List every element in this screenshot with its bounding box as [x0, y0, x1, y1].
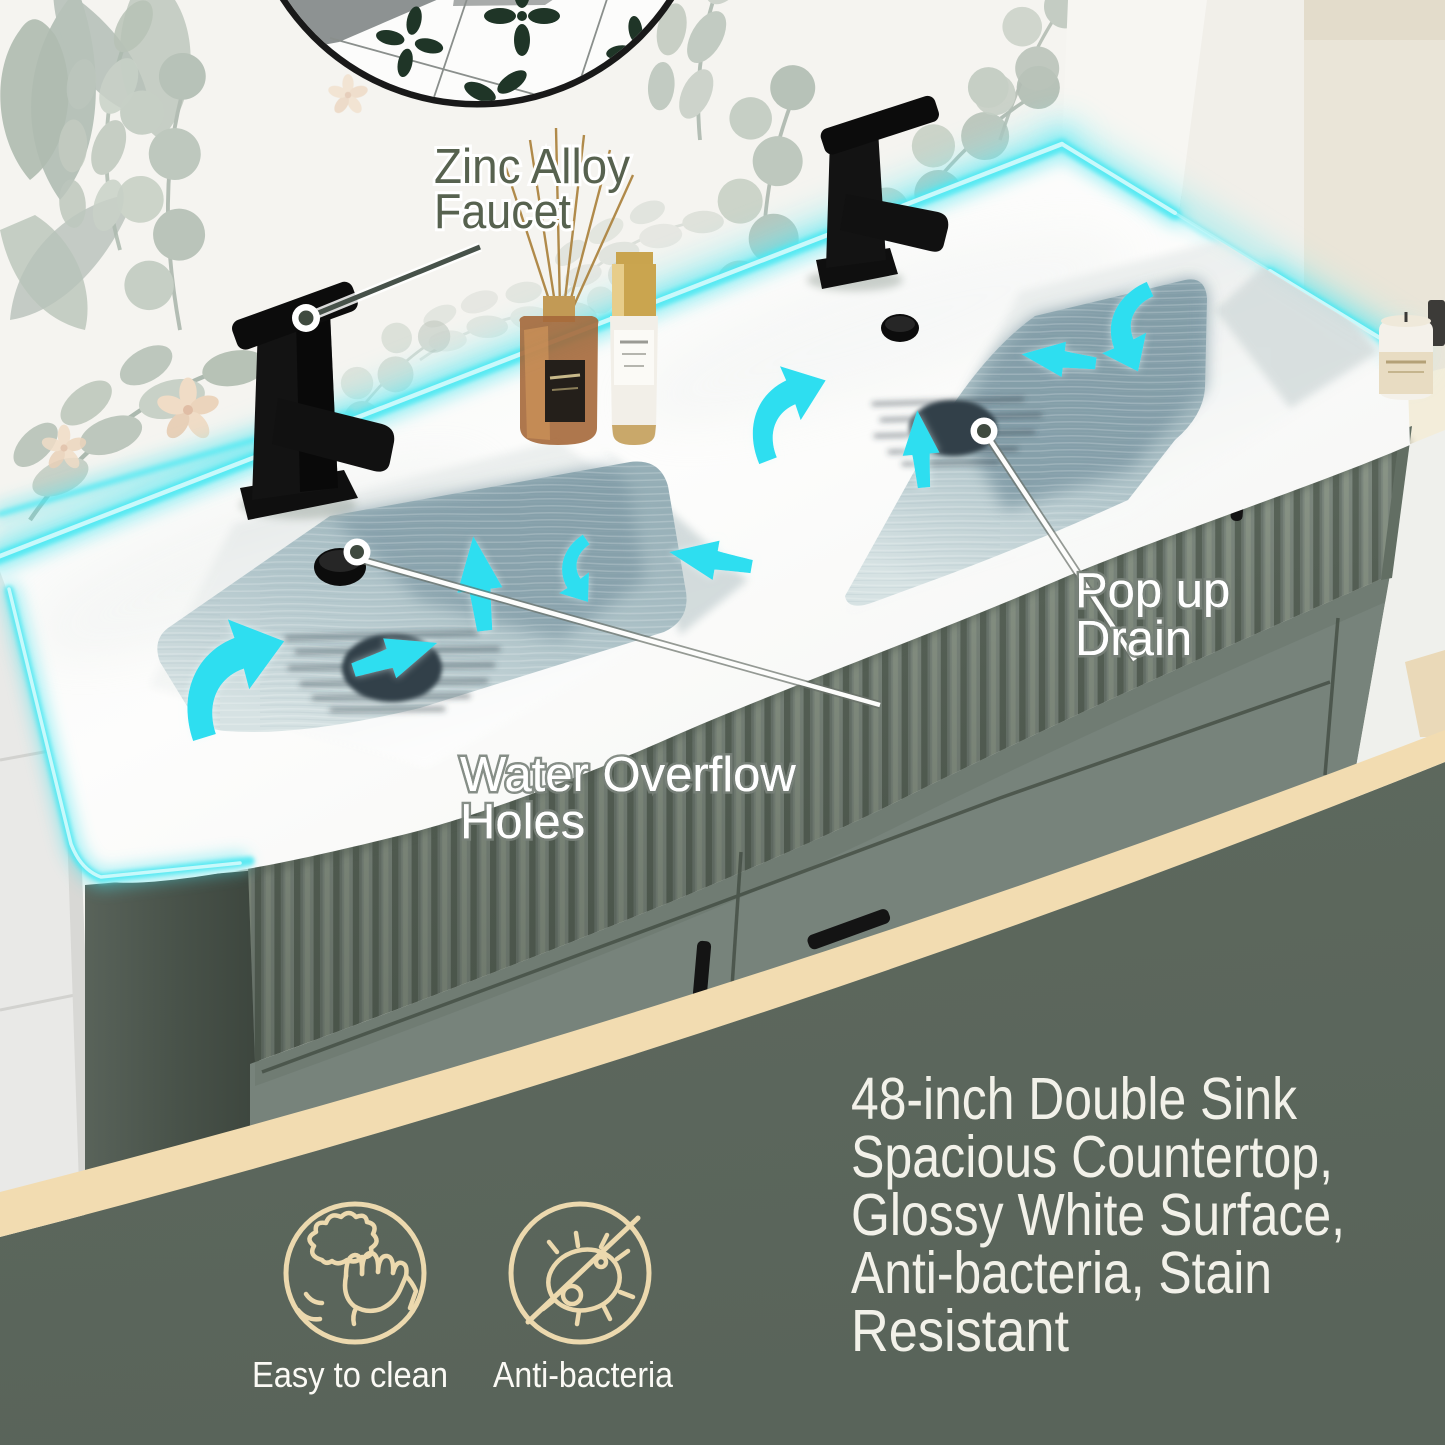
svg-text:Spacious Countertop,: Spacious Countertop,: [851, 1124, 1333, 1190]
svg-text:Resistant: Resistant: [851, 1298, 1069, 1364]
svg-text:Holes: Holes: [460, 795, 585, 849]
svg-text:48-inch Double Sink: 48-inch Double Sink: [851, 1066, 1297, 1132]
svg-text:Glossy White Surface,: Glossy White Surface,: [851, 1182, 1345, 1248]
svg-text:Drain: Drain: [1075, 612, 1192, 666]
svg-text:Anti-bacteria: Anti-bacteria: [493, 1354, 674, 1395]
svg-text:Easy to clean: Easy to clean: [252, 1354, 448, 1395]
svg-text:Anti-bacteria, Stain: Anti-bacteria, Stain: [851, 1240, 1272, 1306]
svg-text:Water Overflow: Water Overflow: [460, 748, 796, 802]
svg-text:Faucet: Faucet: [434, 185, 571, 239]
svg-text:Pop up: Pop up: [1075, 564, 1230, 618]
